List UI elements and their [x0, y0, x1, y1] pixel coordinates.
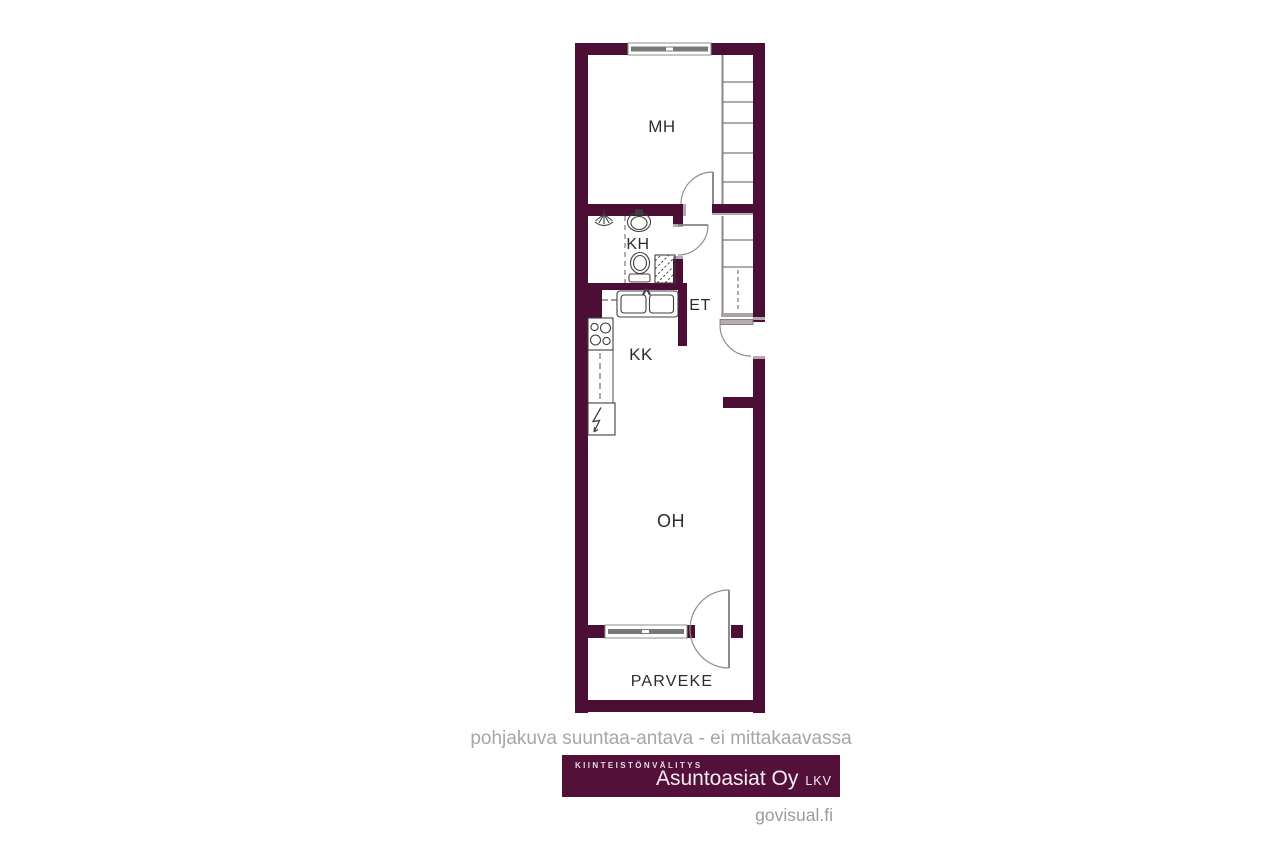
door-entrance [720, 320, 753, 357]
wall-left [575, 43, 588, 713]
door-swing-arc [720, 325, 751, 356]
room-label-mh: MH [637, 117, 687, 137]
wardrobe-end-cap [721, 313, 753, 317]
stove-icon [588, 318, 613, 350]
wall-top-left [575, 43, 628, 55]
disclaimer-text: pohjakuva suuntaa-antava - ei mittakaava… [411, 728, 911, 750]
floor-plan-page: MH KH ET KK OH PARVEKE pohjakuva suuntaa… [0, 0, 1280, 853]
room-label-kk: KK [623, 345, 659, 365]
door-balcony [690, 590, 729, 668]
wall-oh-south-right [731, 625, 743, 638]
wardrobe-mh [723, 55, 754, 204]
wall-right-lower [753, 356, 765, 713]
wall-cap [683, 204, 686, 216]
toilet-icon [629, 253, 650, 283]
brand-logo: KIINTEISTÖNVÄLITYS Asuntoasiat Oy LKV [562, 755, 840, 797]
room-label-kh: KH [621, 236, 655, 254]
wall-kh-south [588, 283, 687, 290]
door-swing-arc [678, 225, 708, 255]
wall-cap [753, 317, 765, 320]
counter-icon [588, 350, 613, 403]
window-oh [605, 625, 687, 638]
wall-mh-et-stub [712, 204, 753, 213]
fridge-icon [588, 403, 615, 435]
door-swing-arc [690, 590, 729, 668]
wall-cap [753, 356, 765, 359]
duct-block [588, 290, 602, 318]
door-mh [681, 172, 713, 204]
outer-walls [575, 43, 765, 713]
door-leaf [720, 320, 753, 325]
wall-oh-south-left [575, 625, 605, 638]
door-kh [678, 225, 708, 255]
kitchen-sink-icon [602, 289, 678, 317]
credit-watermark: govisual.fi [755, 805, 833, 826]
logo-company-name: Asuntoasiat Oy [656, 767, 798, 791]
logo-suffix: LKV [805, 774, 832, 788]
door-swing-arc [681, 172, 713, 204]
wall-right-upper [753, 43, 765, 322]
room-label-parveke: PARVEKE [612, 673, 732, 691]
room-label-et: ET [683, 297, 717, 315]
wardrobes [721, 55, 753, 317]
wall-cap [712, 213, 753, 215]
wall-balcony-south [575, 700, 765, 712]
window-vent-notch [642, 630, 649, 633]
room-label-oh: OH [646, 511, 696, 532]
window-vent-notch [666, 48, 673, 51]
logo-main: Asuntoasiat Oy LKV [656, 767, 832, 791]
wall-et-oh-stub [723, 397, 765, 408]
doors [678, 172, 753, 668]
washing-machine-icon [655, 255, 675, 283]
window-mh [628, 43, 711, 55]
wardrobe-et [721, 216, 753, 317]
wall-top-right [711, 43, 765, 55]
